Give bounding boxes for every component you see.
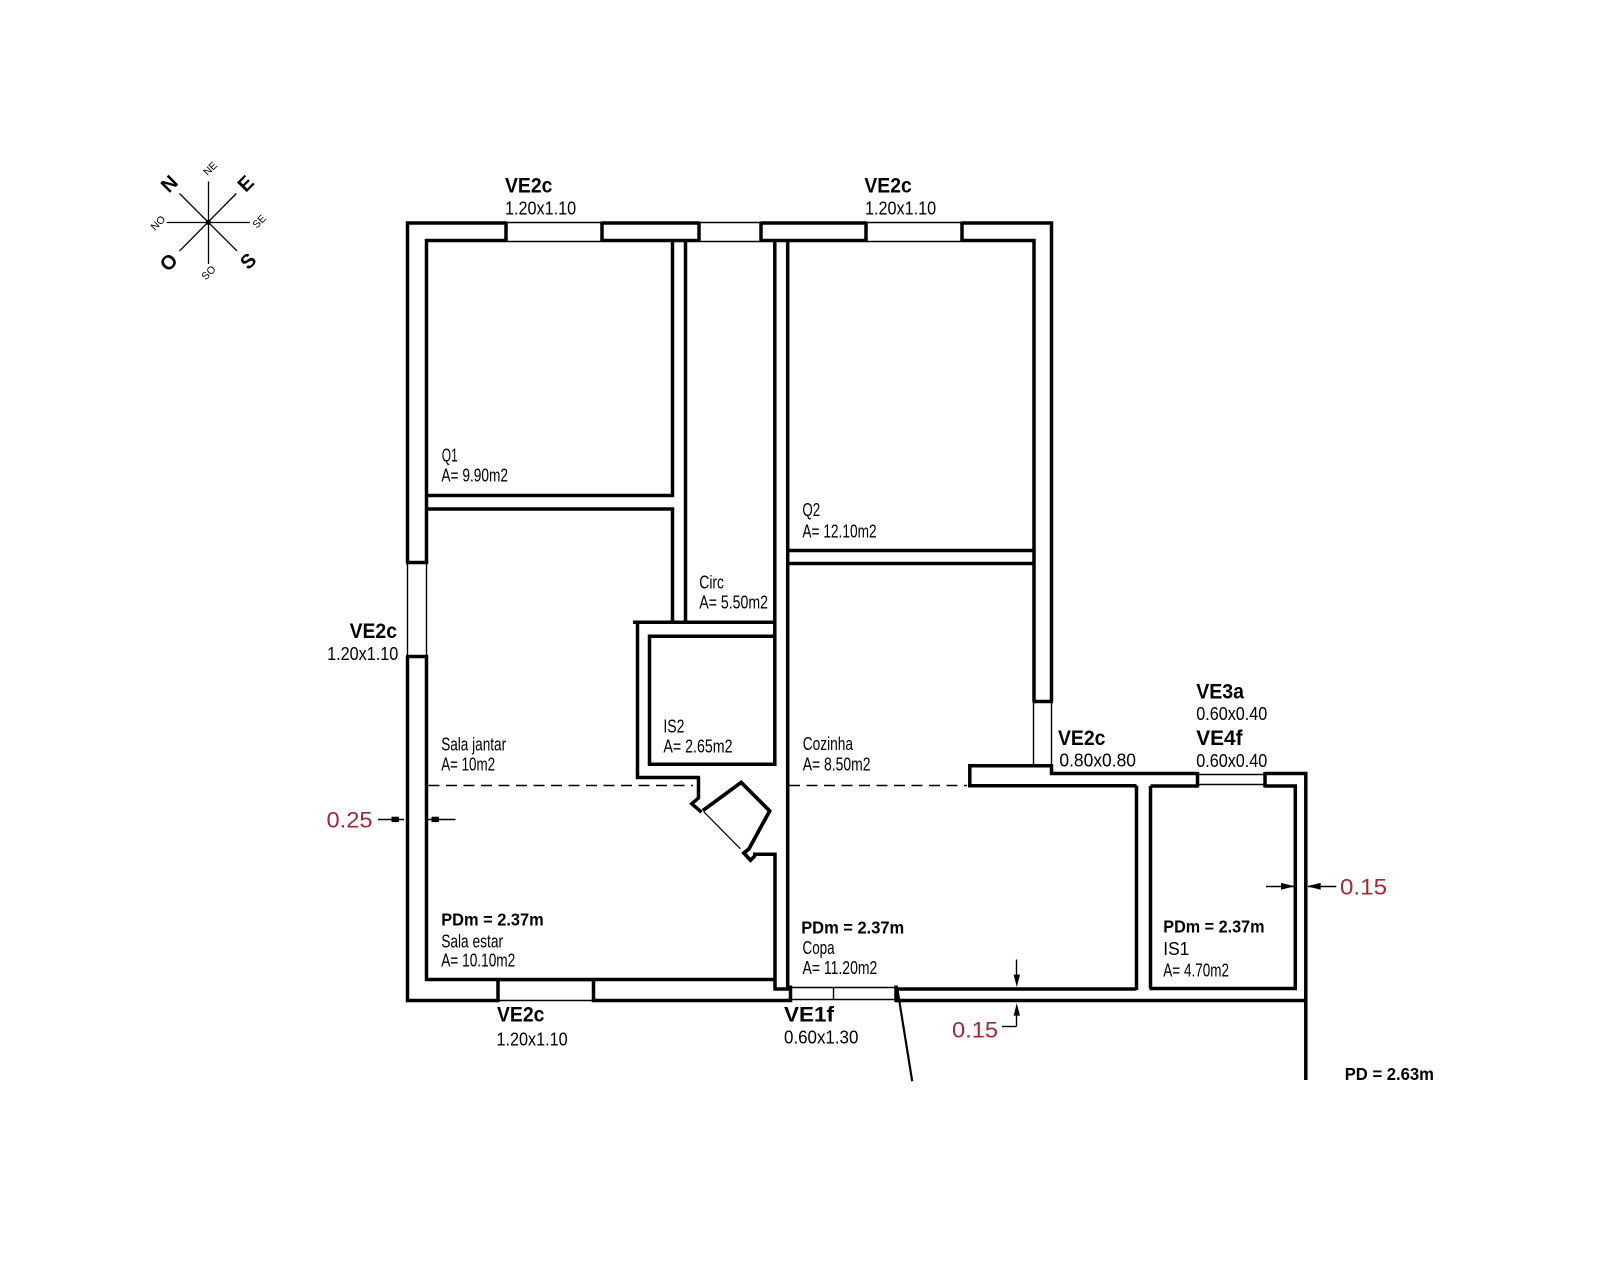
svg-text:Q2: Q2 [802, 500, 820, 520]
svg-text:A= 10.10m2: A= 10.10m2 [441, 951, 515, 971]
svg-text:A= 8.50m2: A= 8.50m2 [803, 755, 871, 775]
svg-text:Copa: Copa [803, 938, 836, 958]
svg-text:A= 2.65m2: A= 2.65m2 [663, 737, 732, 757]
svg-text:VE2c: VE2c [350, 619, 397, 643]
svg-text:1.20x1.10: 1.20x1.10 [327, 643, 398, 664]
svg-text:A= 4.70m2: A= 4.70m2 [1163, 961, 1229, 981]
svg-text:Sala estar: Sala estar [441, 931, 503, 951]
svg-text:PD = 2.63m: PD = 2.63m [1345, 1064, 1434, 1084]
svg-text:0.60x0.40: 0.60x0.40 [1196, 750, 1267, 771]
svg-text:VE1f: VE1f [784, 1003, 835, 1027]
svg-text:0.15: 0.15 [1340, 875, 1387, 900]
svg-text:0.80x0.80: 0.80x0.80 [1059, 749, 1136, 770]
svg-text:NO: NO [148, 213, 168, 233]
svg-text:Sala jantar: Sala jantar [441, 734, 506, 754]
svg-text:O: O [156, 250, 183, 277]
svg-text:1.20x1.10: 1.20x1.10 [865, 198, 936, 219]
svg-text:0.60x0.40: 0.60x0.40 [1196, 703, 1267, 724]
svg-text:1.20x1.10: 1.20x1.10 [505, 198, 576, 219]
svg-text:A= 11.20m2: A= 11.20m2 [803, 958, 878, 978]
svg-text:SE: SE [250, 213, 268, 231]
svg-text:VE2c: VE2c [864, 174, 911, 198]
svg-text:A= 12.10m2: A= 12.10m2 [802, 522, 876, 542]
svg-text:IS2: IS2 [663, 717, 684, 737]
svg-text:Cozinha: Cozinha [803, 734, 854, 754]
svg-text:NE: NE [201, 159, 220, 178]
svg-text:VE2c: VE2c [505, 174, 552, 198]
svg-text:PDm = 2.37m: PDm = 2.37m [801, 918, 904, 938]
svg-text:PDm = 2.37m: PDm = 2.37m [1163, 916, 1264, 936]
svg-text:PDm = 2.37m: PDm = 2.37m [441, 909, 544, 929]
svg-text:S: S [236, 249, 261, 274]
svg-text:0.15: 0.15 [952, 1017, 998, 1042]
svg-text:VE2c: VE2c [1058, 726, 1105, 750]
svg-text:Circ: Circ [699, 572, 724, 592]
svg-text:IS1: IS1 [1163, 939, 1189, 959]
svg-text:VE2c: VE2c [497, 1003, 544, 1027]
svg-text:0.60x1.30: 0.60x1.30 [784, 1026, 858, 1047]
svg-text:Q1: Q1 [442, 446, 458, 466]
svg-text:A= 10m2: A= 10m2 [441, 755, 495, 775]
svg-text:E: E [234, 172, 259, 197]
svg-text:1.20x1.10: 1.20x1.10 [497, 1028, 568, 1049]
svg-text:VE3a: VE3a [1196, 680, 1245, 704]
svg-text:A= 9.90m2: A= 9.90m2 [441, 465, 508, 485]
svg-text:0.25: 0.25 [327, 808, 373, 833]
svg-text:SO: SO [199, 263, 218, 282]
svg-text:N: N [157, 172, 183, 198]
svg-text:A= 5.50m2: A= 5.50m2 [699, 592, 768, 612]
svg-text:VE4f: VE4f [1196, 726, 1243, 750]
